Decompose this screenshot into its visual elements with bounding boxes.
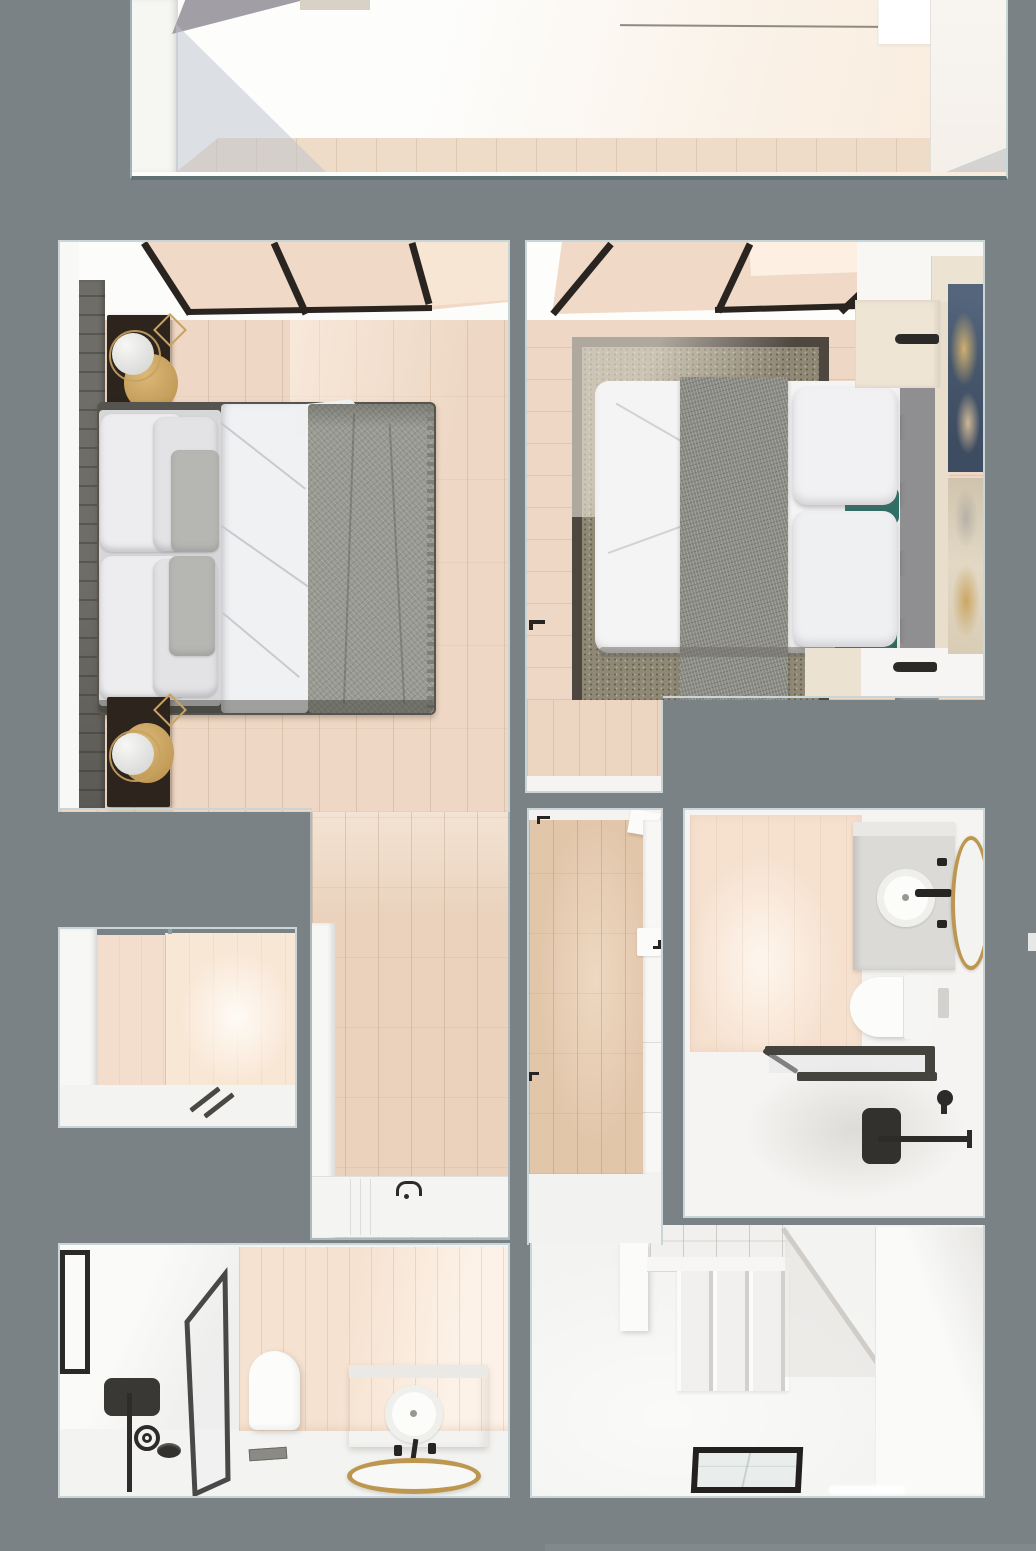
- stair-upper-steps: [650, 1225, 790, 1257]
- artwork-gold-texture: [956, 392, 980, 454]
- room-bedroom-2: [525, 240, 985, 700]
- bathtub-steps: [350, 1179, 380, 1235]
- bedside-counter: [805, 648, 861, 698]
- exterior-wall-window-sliver: [1028, 933, 1036, 951]
- bathroom1-floor-shadow: [745, 1060, 965, 1200]
- toilet: [249, 1351, 300, 1430]
- duvet: [221, 404, 308, 713]
- black-faucet: [915, 889, 952, 897]
- flush-plate: [938, 988, 949, 1018]
- artwork-gold-texture: [950, 312, 978, 386]
- black-towel-bar: [878, 1136, 970, 1142]
- bedroom1-skylight: [60, 242, 508, 320]
- door-pivot-mark: [168, 929, 172, 934]
- wall-sconce: [899, 334, 939, 344]
- towel-bar-bracket: [967, 1130, 972, 1148]
- room-upper: [130, 0, 1008, 180]
- upper-room-left-wall: [132, 0, 178, 172]
- shower-screen-frame: [797, 1072, 937, 1081]
- sink-drain: [410, 1410, 417, 1417]
- faucet-mount: [937, 858, 947, 866]
- corridor-wood-floor: [529, 820, 661, 1174]
- bedroom1-south-wall-line: [60, 808, 312, 810]
- faucet-handle: [394, 1445, 402, 1456]
- room-bathroom-2: [58, 1243, 510, 1498]
- glass-shower-screen: [187, 1274, 228, 1494]
- shower-room-tiled-wall: [97, 935, 167, 1090]
- stair-hall-wall-block: [620, 1243, 648, 1331]
- bedroom2-south-wall-line: [663, 696, 983, 698]
- artwork-frame-edge: [984, 284, 985, 654]
- faucet-handle: [428, 1443, 436, 1454]
- shower-room-tiled-wall-lit: [165, 933, 295, 1085]
- blanket-crease: [343, 414, 355, 704]
- room-hallway: [310, 812, 510, 1240]
- glass-floor-hatch: [691, 1447, 803, 1493]
- duvet-fold: [221, 520, 308, 590]
- wall-sconce-knob: [895, 334, 905, 344]
- bathroom1-tiled-wall: [690, 815, 862, 1052]
- floor-plan-render: [0, 0, 1036, 1551]
- vanity-counter-lip: [349, 1365, 488, 1378]
- accent-pillow: [169, 556, 215, 656]
- blanket-fringe: [427, 408, 434, 708]
- accent-pillow: [171, 450, 219, 552]
- artwork-navy-gold: [948, 284, 984, 472]
- room-corridor: [527, 808, 663, 1245]
- light-glow: [829, 1486, 905, 1494]
- hand-shower-stem: [941, 1104, 947, 1114]
- room-walk-in-shower: [58, 927, 297, 1128]
- bedroom2-south-cabinet: [861, 648, 983, 698]
- faucet-mount: [937, 920, 947, 928]
- bedroom-2-floor-extension: [525, 700, 663, 793]
- corridor-white-floor: [529, 1174, 661, 1243]
- stair-landing: [647, 1257, 789, 1272]
- lamp-sphere: [112, 733, 154, 775]
- wall-corner-seam: [165, 935, 166, 1085]
- wall-sconce: [897, 662, 937, 672]
- bedroom1-west-wall: [60, 242, 79, 810]
- room-bedroom-1: [58, 240, 510, 812]
- skylight-sill-rail: [715, 306, 859, 310]
- stair-hall-east-wall: [875, 1227, 984, 1494]
- corridor-closet-doors: [643, 820, 661, 1174]
- stair-treads: [677, 1271, 789, 1391]
- toilet-bowl: [850, 977, 907, 1037]
- bathtub-faucet: [396, 1181, 422, 1196]
- pillow: [793, 387, 897, 505]
- blanket: [308, 404, 434, 713]
- artwork-gold-texture: [952, 564, 980, 638]
- wall-sconce-knob: [893, 662, 903, 672]
- upper-room-right-wall: [930, 0, 1007, 172]
- room-bathroom-1: [683, 808, 985, 1218]
- pillow: [793, 511, 897, 647]
- sink-drain: [902, 894, 909, 901]
- round-gold-mirror: [347, 1458, 481, 1494]
- bedroom1-skylight-glazing: [60, 242, 508, 320]
- skylight-glass-sunlit: [749, 242, 862, 276]
- door-handle: [658, 940, 661, 949]
- door-handle: [537, 816, 540, 824]
- artwork-gray-texture: [954, 488, 978, 548]
- gold-oval-mirror: [951, 836, 985, 970]
- door-handle: [529, 620, 533, 630]
- lamp-sphere: [112, 333, 154, 375]
- duvet-fold: [222, 612, 300, 678]
- bedroom2-ext-wall: [527, 776, 661, 791]
- toilet-tank: [903, 975, 931, 1039]
- shower-room-floor: [60, 1085, 295, 1126]
- shower-glass: [769, 1055, 929, 1073]
- skylight-sill-rail: [188, 308, 432, 312]
- bedside-counter: [855, 300, 941, 388]
- hallway-wood-floor: [312, 812, 508, 1238]
- bathtub-faucet-knob: [404, 1194, 409, 1199]
- vanity-counter-lip: [853, 822, 955, 836]
- bathtub: [312, 1176, 508, 1237]
- door-handle: [529, 1072, 532, 1081]
- artwork-cream-gold: [948, 478, 984, 654]
- upper-room-wall-strip: [300, 0, 370, 10]
- closet-door-seam: [643, 1042, 661, 1043]
- duvet-fold: [221, 420, 306, 489]
- room-stair-hall: [530, 1225, 985, 1498]
- bottom-wall-highlight: [545, 1544, 1036, 1551]
- blanket-crease: [389, 424, 406, 704]
- shower-screen-frame: [765, 1046, 933, 1055]
- bed: [97, 402, 436, 715]
- shower-screen-post: [925, 1046, 935, 1081]
- closet-door-seam: [643, 1112, 661, 1113]
